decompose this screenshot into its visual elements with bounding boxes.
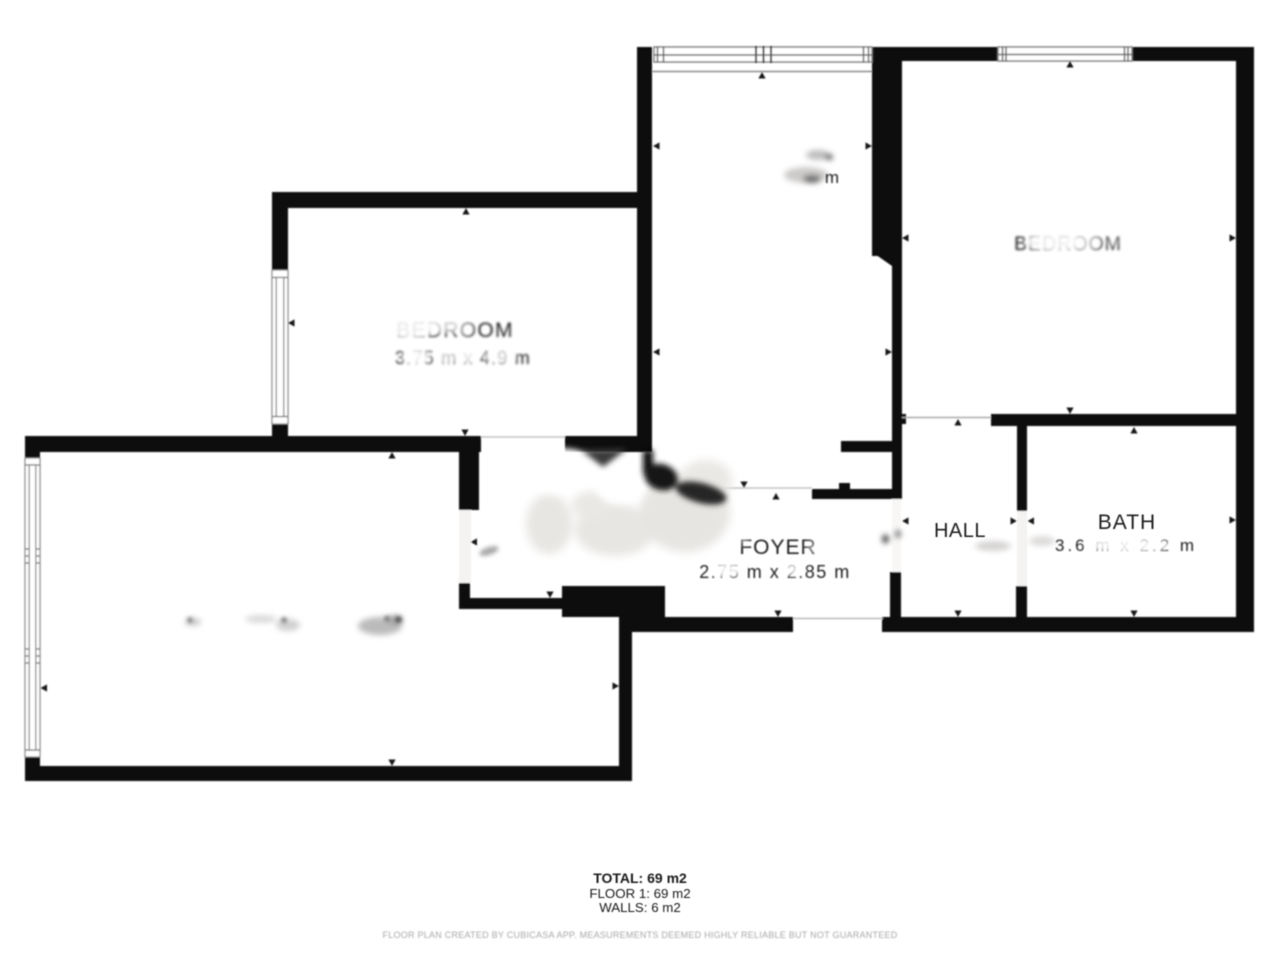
svg-text:FLOOR PLAN CREATED BY CUBICASA: FLOOR PLAN CREATED BY CUBICASA APP. MEAS… bbox=[383, 930, 898, 940]
svg-text:TOTAL: 69 m2: TOTAL: 69 m2 bbox=[593, 870, 687, 886]
svg-text:m: m bbox=[825, 168, 839, 187]
svg-text:HALL: HALL bbox=[934, 520, 986, 542]
svg-text:FLOOR 1: 69 m2: FLOOR 1: 69 m2 bbox=[589, 886, 690, 901]
svg-text:FOYER: FOYER bbox=[739, 536, 816, 559]
svg-text:WALLS: 6 m2: WALLS: 6 m2 bbox=[599, 900, 681, 915]
svg-text:BATH: BATH bbox=[1098, 511, 1156, 534]
